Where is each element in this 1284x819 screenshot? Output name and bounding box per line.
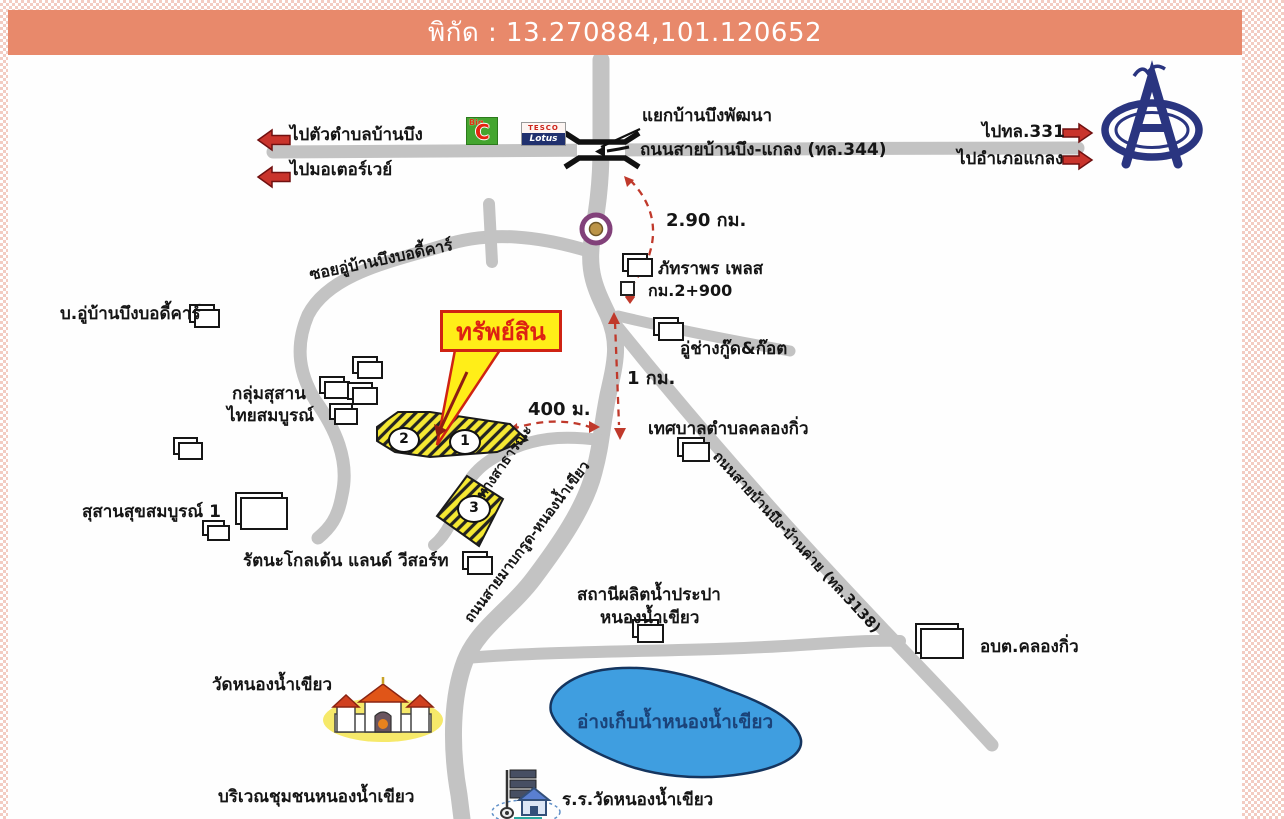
building-icon-suksomboon-big — [240, 497, 288, 530]
arrow-right-331 — [1063, 124, 1092, 142]
label-water-station-2: หนองน้ำเขียว — [600, 608, 699, 628]
label-rattana: รัตนะโกลเด้น แลนด์ วีสอร์ท — [243, 551, 449, 571]
building-icon-stray — [178, 442, 203, 460]
coordinates-text: พิกัด : 13.270884,101.120652 — [428, 12, 822, 53]
building-icon-phattraporn — [627, 258, 653, 277]
school-icon — [492, 770, 560, 819]
building-icon-municipality — [682, 442, 710, 462]
label-community: บริเวณชุมชนหนองน้ำเขียว — [218, 787, 414, 807]
label-to-motorway: ไปมอเตอร์เวย์ — [290, 160, 392, 180]
building-icon-cemetery-4 — [334, 408, 358, 425]
label-obt: อบต.คลองกิ่ว — [980, 637, 1079, 657]
label-to-tambon: ไปตัวตำบลบ้านบึง — [290, 125, 423, 145]
km-marker-icon — [621, 282, 634, 295]
tesco-text: TESCO — [522, 123, 565, 133]
property-callout: ทรัพย์สิน — [440, 310, 562, 352]
label-junction-name: แยกบ้านบึงพัฒนา — [642, 106, 772, 126]
building-icon-suksomboon-small — [207, 525, 230, 541]
label-cemetery-suk: สุสานสุขสมบูรณ์ 1 — [82, 502, 221, 522]
label-cemetery-group-1: กลุ่มสุสาน — [232, 384, 306, 404]
building-icon-rattana — [467, 556, 493, 575]
label-garage: อู่ช่างกู๊ด&ก๊อต — [680, 339, 787, 359]
label-distance-1km: 1 กม. — [627, 368, 675, 390]
property-callout-text: ทรัพย์สิน — [456, 312, 546, 351]
label-school: ร.ร.วัดหนองน้ำเขียว — [562, 790, 713, 810]
label-lake: อ่างเก็บน้ำหนองน้ำเขียว — [577, 711, 773, 734]
label-water-station-1: สถานีผลิตน้ำประปา — [577, 585, 721, 605]
label-municipality: เทศบาลตำบลคลองกิ่ว — [648, 419, 809, 439]
label-body-shop: บ.อู่บ้านบึงบอดี้คาร์ — [60, 304, 201, 324]
scanned-map-page: พิกัด : 13.270884,101.120652 Big C TESCO… — [0, 0, 1284, 819]
agency-logo-icon — [1105, 66, 1199, 164]
road-lower-horizontal — [465, 641, 900, 658]
temple-icon — [323, 677, 443, 742]
route-dashes-group — [512, 180, 653, 429]
bigc-c-text: C — [475, 120, 490, 144]
plot-number-2: 2 — [388, 427, 420, 453]
label-cemetery-group-2: ไทยสมบูรณ์ — [227, 406, 314, 426]
plot-number-3: 3 — [457, 495, 491, 523]
label-to-331: ไปทล.331 — [982, 122, 1065, 142]
arrow-left-motorway — [258, 167, 290, 187]
label-to-klaeng: ไปอำเภอแกลง — [957, 149, 1063, 169]
label-road-344: ถนนสายบ้านบึง-แกลง (ทล.344) — [640, 140, 887, 160]
plot-number-1: 1 — [449, 429, 481, 455]
coordinates-banner: พิกัด : 13.270884,101.120652 — [8, 10, 1242, 55]
label-phattraporn: ภัทราพร เพลส — [658, 259, 763, 279]
label-km-marker: กม.2+900 — [648, 281, 732, 300]
label-distance-290: 2.90 กม. — [666, 210, 746, 232]
bigc-logo: Big C — [466, 117, 498, 145]
lotus-text: Lotus — [522, 133, 565, 145]
label-wat: วัดหนองน้ำเขียว — [212, 675, 332, 695]
building-icon-cemetery-1 — [357, 361, 383, 379]
roundabout-icon — [582, 215, 610, 243]
tesco-lotus-logo: TESCO Lotus — [521, 122, 566, 146]
road-stub-top — [489, 204, 492, 262]
building-icon-cemetery-3 — [352, 387, 378, 405]
building-icon-obt — [920, 628, 964, 659]
building-icon-cemetery-2 — [324, 381, 350, 399]
